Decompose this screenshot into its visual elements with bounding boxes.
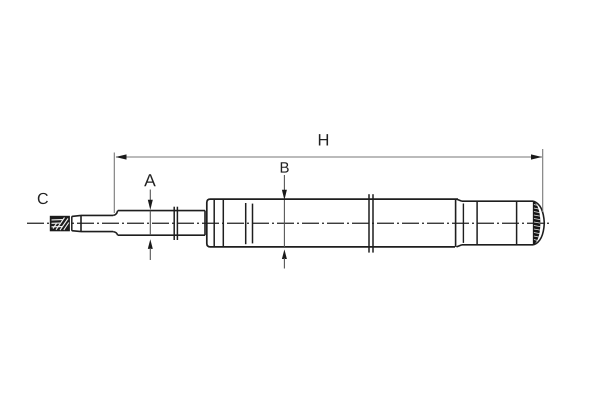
- svg-text:H: H: [318, 131, 330, 149]
- svg-text:B: B: [279, 160, 289, 177]
- svg-text:A: A: [144, 170, 156, 190]
- svg-text:C: C: [37, 191, 49, 208]
